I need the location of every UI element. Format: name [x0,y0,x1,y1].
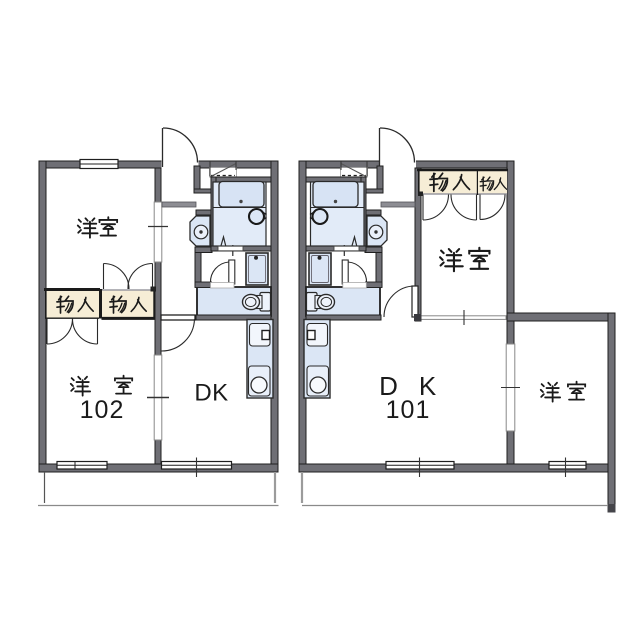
svg-text:101: 101 [386,396,431,424]
svg-text:102: 102 [80,396,125,424]
svg-text:DK: DK [194,380,228,407]
